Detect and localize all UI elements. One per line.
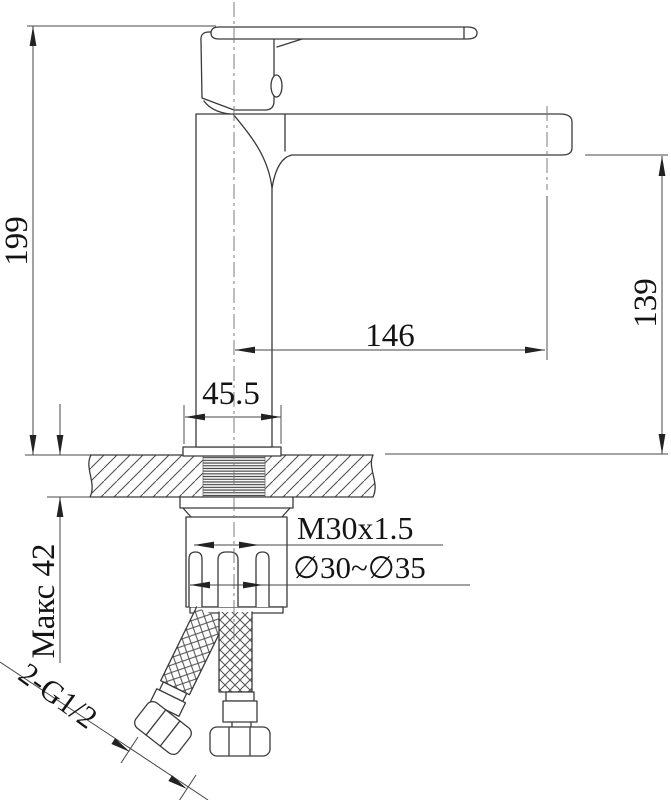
handle-base-block: [201, 31, 274, 110]
nut-wing-center: [218, 552, 238, 607]
technical-drawing: 199 Макс 42 146 139 45.5 M30x1.5: [0, 0, 671, 800]
braided-hose-straight: [219, 612, 252, 692]
dim-spout-reach-label: 146: [365, 318, 415, 354]
dimension-total-height: 199: [0, 26, 216, 455]
base-plate: [183, 447, 281, 456]
faucet-handle: [201, 27, 477, 114]
dim-base-width-label: 45.5: [202, 376, 260, 412]
nut-wing-left: [189, 552, 202, 607]
dim-outlet-height-label: 139: [628, 278, 664, 328]
dimension-max-deck-thickness: Макс 42: [26, 404, 90, 663]
handle-lever: [211, 27, 477, 39]
supply-hose-straight: [210, 612, 270, 756]
mounting-nut: [180, 497, 293, 613]
dimension-spout-reach: 146: [235, 318, 545, 354]
handle-side-button: [271, 75, 282, 97]
braided-hose-angled: [161, 607, 226, 695]
thread-spec-label: M30x1.5: [297, 510, 413, 546]
dim-max-deck-label: Макс 42: [26, 543, 62, 658]
hole-range-label: ∅30~∅35: [293, 550, 426, 585]
dimension-outlet-height: 139: [385, 155, 668, 454]
hose-nut-angled: [132, 699, 194, 757]
hose-nut-straight: [210, 727, 270, 756]
drawing-canvas: 199 Макс 42 146 139 45.5 M30x1.5: [0, 0, 671, 800]
flange-washer: [180, 497, 293, 508]
dim-total-height-label: 199: [0, 216, 35, 266]
hose-connection-label: 2-G1/2: [12, 656, 104, 736]
nut-wing-right: [256, 552, 269, 607]
